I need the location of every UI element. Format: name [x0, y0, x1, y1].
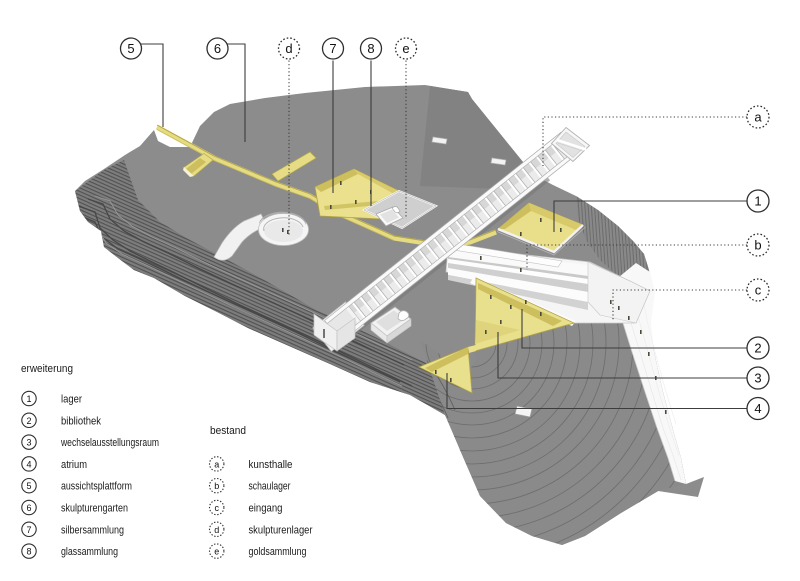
svg-text:8: 8: [26, 547, 31, 557]
svg-text:aussichtsplattform: aussichtsplattform: [61, 481, 132, 493]
svg-text:b: b: [214, 481, 219, 491]
svg-text:7: 7: [26, 525, 31, 535]
svg-text:2: 2: [754, 341, 761, 356]
svg-text:2: 2: [26, 416, 31, 426]
svg-text:a: a: [754, 110, 762, 125]
svg-text:4: 4: [754, 401, 761, 416]
svg-text:4: 4: [26, 459, 31, 469]
svg-text:d: d: [214, 525, 219, 535]
svg-text:b: b: [754, 238, 761, 253]
svg-text:skulpturenlager: skulpturenlager: [249, 524, 313, 536]
svg-text:5: 5: [127, 41, 134, 56]
svg-text:erweiterung: erweiterung: [21, 363, 73, 375]
svg-text:a: a: [214, 459, 219, 469]
svg-text:7: 7: [329, 41, 336, 56]
svg-text:wechselausstellungsraum: wechselausstellungsraum: [60, 437, 159, 449]
svg-text:kunsthalle: kunsthalle: [249, 459, 293, 471]
svg-text:bibliothek: bibliothek: [61, 415, 101, 427]
svg-text:goldsammlung: goldsammlung: [249, 546, 307, 558]
svg-text:1: 1: [754, 194, 761, 209]
svg-text:glassammlung: glassammlung: [61, 546, 118, 558]
svg-text:bestand: bestand: [210, 425, 246, 437]
svg-text:e: e: [402, 41, 409, 56]
svg-text:skulpturengarten: skulpturengarten: [61, 503, 128, 515]
svg-text:8: 8: [367, 41, 374, 56]
svg-text:atrium: atrium: [61, 459, 87, 471]
svg-text:3: 3: [26, 438, 31, 448]
svg-text:e: e: [214, 547, 219, 557]
svg-text:3: 3: [754, 371, 761, 386]
svg-text:eingang: eingang: [249, 503, 283, 515]
svg-text:schaulager: schaulager: [249, 481, 291, 493]
svg-text:c: c: [755, 283, 762, 298]
svg-text:c: c: [214, 503, 219, 513]
svg-text:d: d: [285, 41, 292, 56]
svg-text:1: 1: [26, 394, 31, 404]
svg-text:silbersammlung: silbersammlung: [61, 524, 124, 536]
svg-text:6: 6: [26, 503, 31, 513]
svg-text:lager: lager: [61, 394, 82, 406]
svg-text:6: 6: [214, 41, 221, 56]
svg-text:5: 5: [26, 481, 31, 491]
